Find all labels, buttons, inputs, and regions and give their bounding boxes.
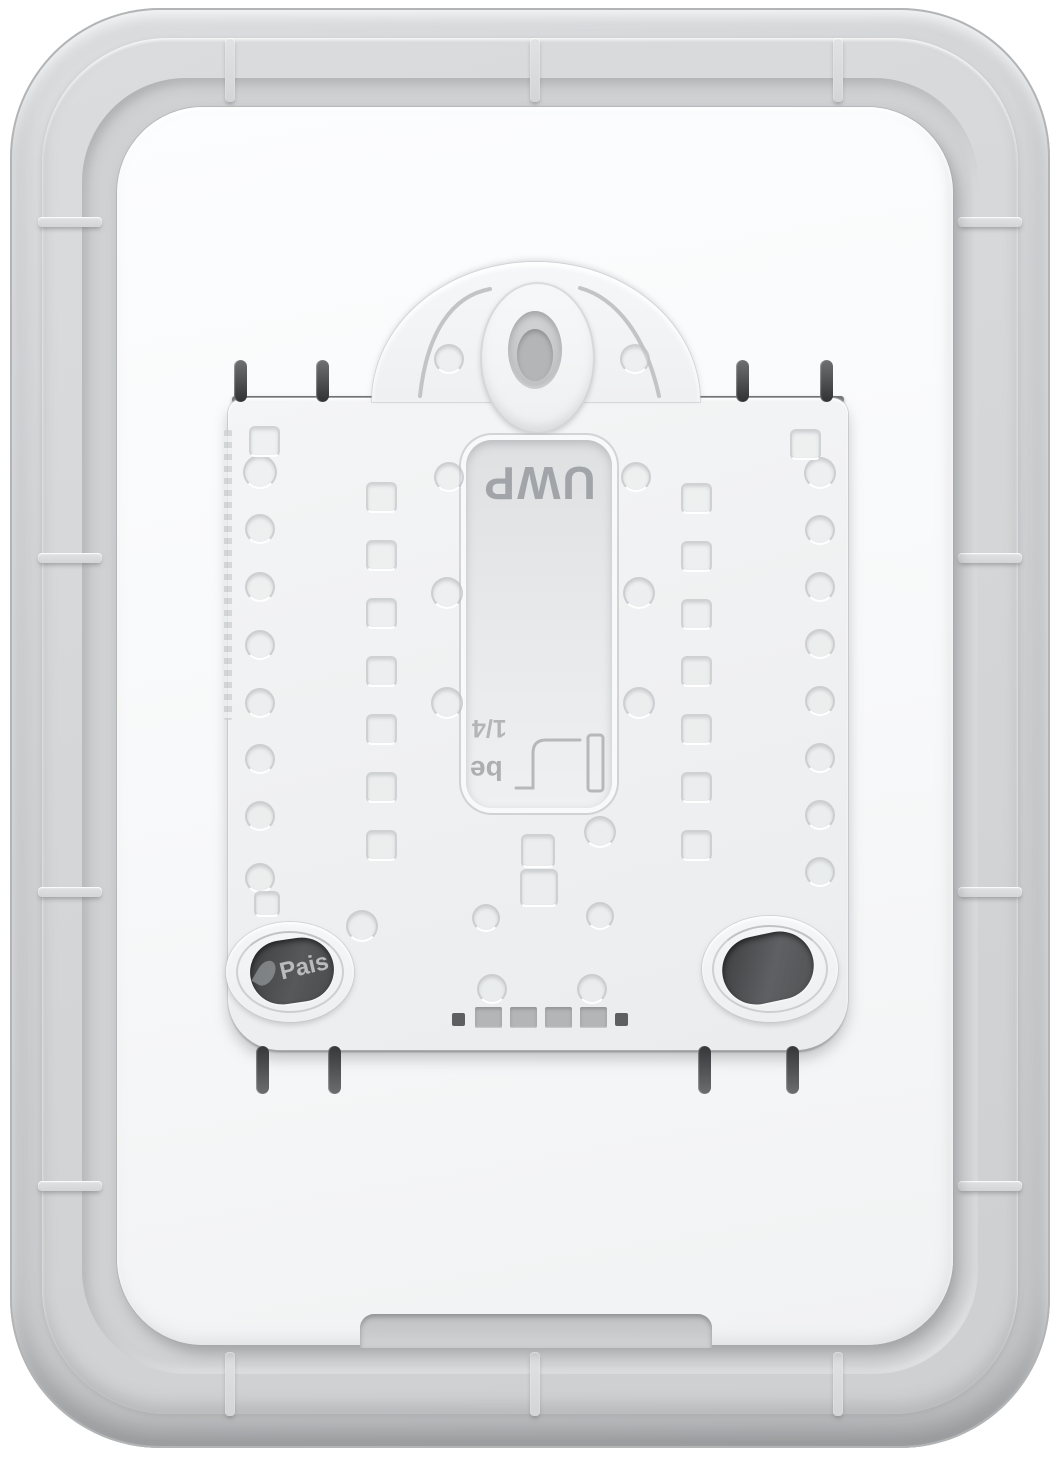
keyhole-slot-center — [517, 329, 553, 381]
vent-slot-dark — [452, 1013, 465, 1026]
strip-gauge-text: be — [470, 754, 503, 786]
terminal-release-slot — [681, 656, 712, 687]
wire-terminal-hole — [245, 744, 275, 774]
wire-terminal-hole — [245, 630, 275, 660]
wire-terminal-hole — [472, 904, 500, 932]
wire-terminal-hole — [623, 687, 655, 719]
wire-terminal-hole — [431, 687, 463, 719]
wire-terminal-hole — [245, 572, 275, 602]
terminal-release-slot — [681, 714, 712, 745]
vent-slot — [580, 1007, 607, 1028]
wire-terminal-hole — [245, 688, 275, 718]
wire-terminal-hole — [584, 816, 616, 848]
terminal-release-slot — [681, 830, 712, 861]
mounting-prong-top — [316, 360, 329, 402]
wire-terminal-hole — [577, 974, 607, 1004]
wire-terminal-hole — [620, 344, 650, 374]
wire-terminal-hole — [805, 743, 835, 773]
rib-fin — [958, 887, 1022, 897]
wire-terminal-hole — [245, 801, 275, 831]
rib-fin — [225, 38, 235, 102]
uwp-marking: UWP — [466, 456, 612, 510]
uwp-window: UWP 1/4 be — [466, 440, 612, 808]
terminal-release-slot — [790, 429, 821, 460]
terminal-release-slot — [681, 772, 712, 803]
terminal-release-slot — [366, 540, 397, 571]
mounting-prong-top — [234, 360, 247, 402]
wire-terminal-hole — [805, 515, 835, 545]
mounting-prong-bottom — [698, 1046, 711, 1094]
rib-fin — [958, 1181, 1022, 1191]
rib-fin — [530, 1352, 540, 1416]
terminal-release-slot — [681, 483, 712, 514]
wire-terminal-hole — [434, 344, 464, 374]
mounting-prong-bottom — [786, 1046, 799, 1094]
rib-fin — [833, 1352, 843, 1416]
wire-terminal-hole — [431, 577, 463, 609]
product-photo-scene: UWP 1/4 be Pais — [0, 0, 1061, 1458]
mounting-prong-bottom — [328, 1046, 341, 1094]
terminal-release-slot — [366, 714, 397, 745]
terminal-release-slot — [249, 426, 280, 457]
rib-fin — [38, 553, 102, 563]
vent-slot — [510, 1007, 537, 1028]
terminal-release-slot — [366, 830, 397, 861]
mounting-prong-top — [820, 360, 833, 402]
wire-terminal-hole — [805, 629, 835, 659]
wire-terminal-hole — [477, 974, 507, 1004]
packaging-text-through-hole: Pais — [277, 948, 331, 986]
terminal-release-slot — [681, 541, 712, 572]
mounting-prong-bottom — [256, 1046, 269, 1094]
rib-fin — [38, 217, 102, 227]
rib-fin — [225, 1352, 235, 1416]
vent-slot — [545, 1007, 572, 1028]
rib-fin — [38, 1181, 102, 1191]
terminal-release-slot — [521, 834, 555, 868]
vent-slot-dark — [615, 1013, 628, 1026]
terminal-release-slot — [366, 656, 397, 687]
terminal-release-slot — [366, 772, 397, 803]
back-plate-bottom-notch — [360, 1314, 712, 1348]
terminal-release-slot — [366, 482, 397, 513]
terminal-release-slot — [366, 598, 397, 629]
wire-terminal-hole — [346, 910, 378, 942]
terminal-release-slot — [254, 891, 280, 917]
rib-fin — [833, 38, 843, 102]
mounting-prong-top — [736, 360, 749, 402]
wire-terminal-hole — [805, 857, 835, 887]
wire-terminal-hole — [623, 577, 655, 609]
serrated-edge — [224, 430, 232, 720]
wire-terminal-hole — [804, 457, 836, 489]
wire-terminal-hole — [434, 462, 464, 492]
wire-terminal-hole — [243, 455, 277, 489]
wire-terminal-hole — [621, 462, 651, 492]
wire-terminal-hole — [805, 800, 835, 830]
wire-terminal-hole — [805, 572, 835, 602]
terminal-release-slot — [520, 869, 558, 907]
wire-terminal-hole — [245, 863, 275, 893]
wire-terminal-hole — [805, 686, 835, 716]
rib-fin — [958, 553, 1022, 563]
wire-terminal-hole — [245, 514, 275, 544]
rib-fin — [958, 217, 1022, 227]
rib-fin — [530, 38, 540, 102]
strip-gauge-fraction: 1/4 — [472, 713, 507, 742]
terminal-release-slot — [681, 599, 712, 630]
rib-fin — [38, 887, 102, 897]
leaf-mark — [251, 957, 279, 989]
wire-terminal-hole — [586, 902, 614, 930]
vent-slot — [475, 1007, 502, 1028]
